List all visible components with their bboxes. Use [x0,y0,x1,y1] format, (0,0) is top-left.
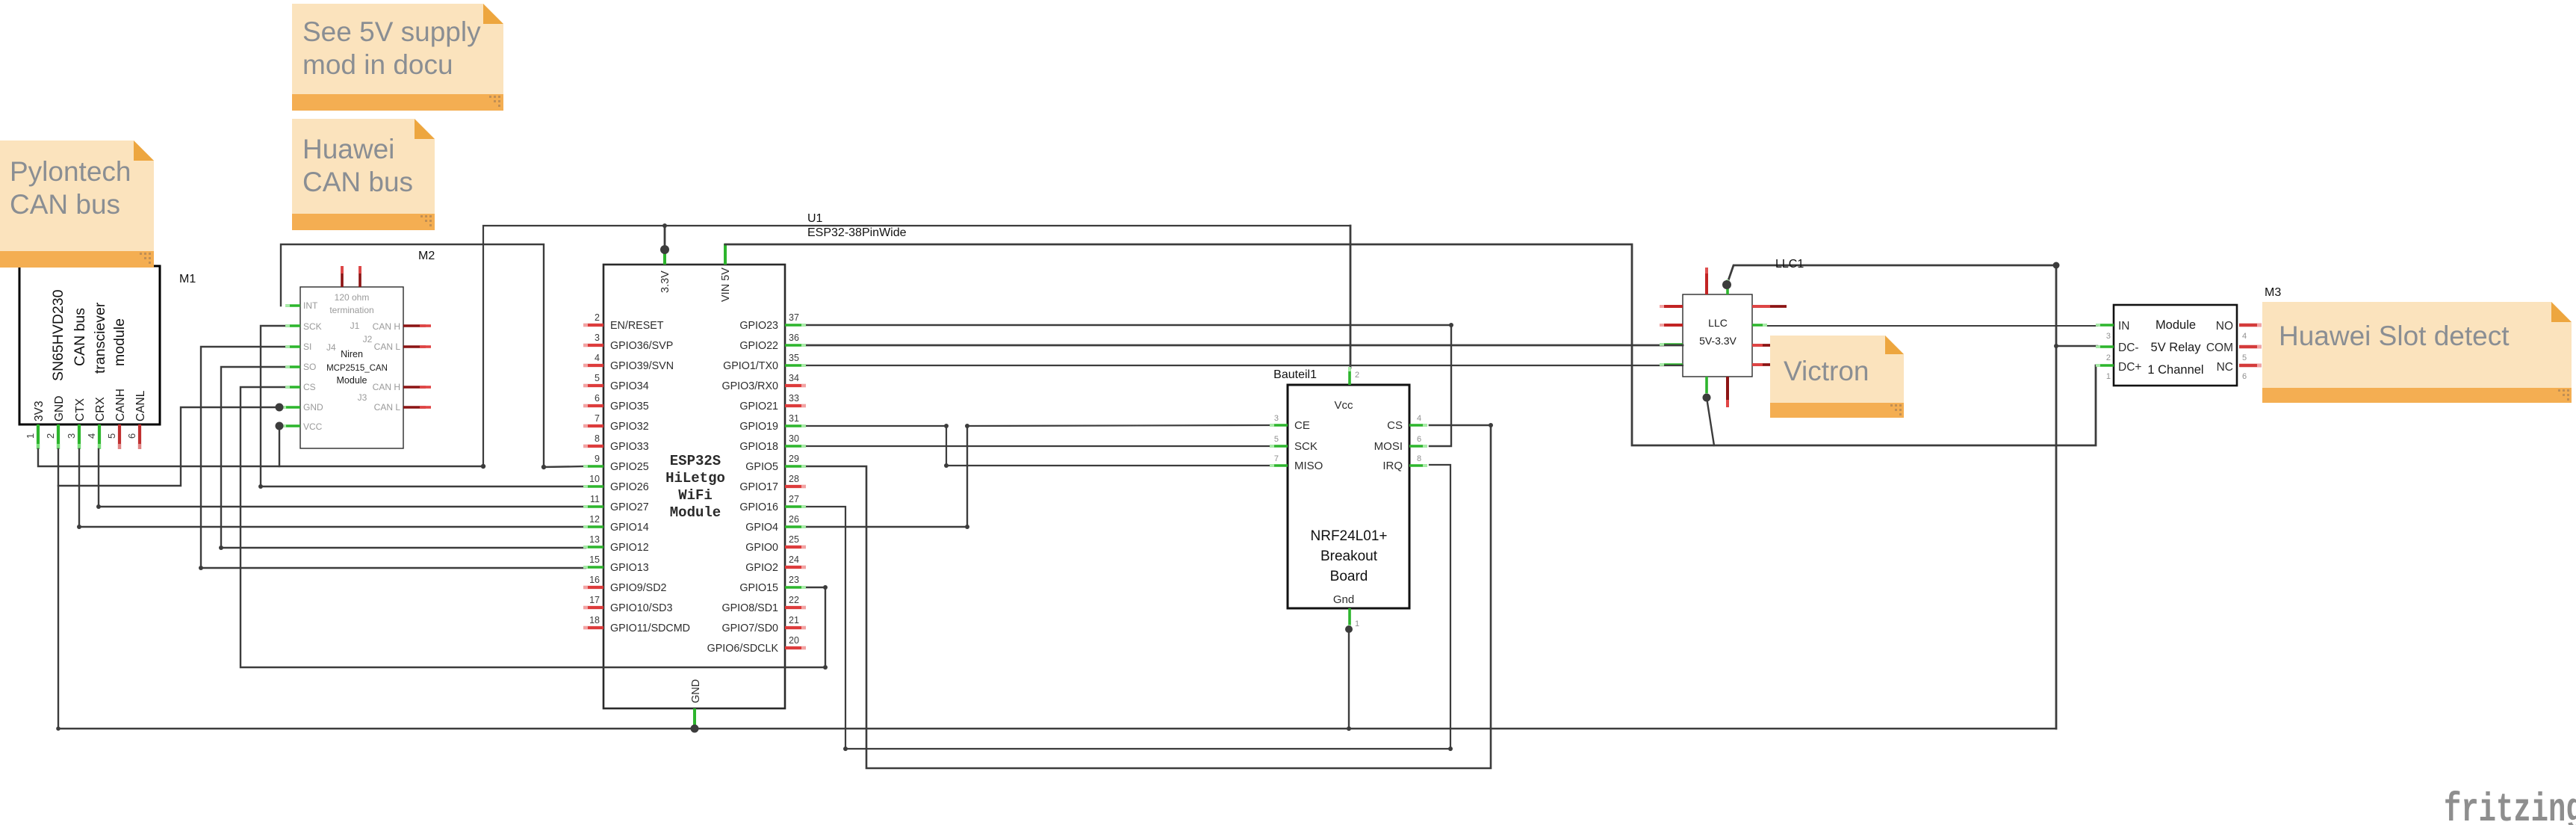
svg-text:1 Channel: 1 Channel [2147,363,2203,377]
svg-text:CANL: CANL [134,390,147,421]
svg-text:CAN L: CAN L [374,342,401,352]
svg-text:4: 4 [1417,414,1421,423]
svg-text:Breakout: Breakout [1320,549,1378,564]
svg-text:1: 1 [1355,619,1359,628]
svg-text:GPIO19: GPIO19 [739,421,778,433]
svg-text:11: 11 [590,494,600,504]
svg-text:28: 28 [789,474,799,484]
svg-text:35: 35 [789,353,799,363]
svg-text:GPIO10/SD3: GPIO10/SD3 [610,602,672,614]
svg-text:VIN 5V: VIN 5V [720,268,732,302]
svg-text:CS: CS [303,382,316,392]
svg-text:120 ohm: 120 ohm [335,292,370,303]
svg-text:mod in docu: mod in docu [302,49,453,80]
svg-text:18: 18 [589,615,600,625]
svg-text:DC-: DC- [2118,342,2139,354]
svg-text:COM: COM [2206,342,2233,354]
svg-text:NRF24L01+: NRF24L01+ [1311,528,1388,544]
svg-text:GPIO33: GPIO33 [610,441,649,453]
svg-text:GPIO16: GPIO16 [739,501,778,513]
svg-text:SN65HVD230: SN65HVD230 [50,289,66,381]
svg-text:GPIO15: GPIO15 [739,582,778,594]
svg-text:30: 30 [789,433,799,444]
svg-text:2: 2 [45,433,56,439]
svg-text:GPIO23: GPIO23 [739,320,778,332]
svg-text:M2: M2 [418,250,435,262]
svg-text:J2: J2 [363,334,373,344]
svg-text:MISO: MISO [1294,460,1323,472]
svg-text:LLC1: LLC1 [1775,258,1804,271]
svg-text:13: 13 [589,534,600,545]
svg-text:GPIO18: GPIO18 [739,441,778,453]
svg-text:LLC: LLC [1708,317,1728,329]
svg-text:MCP2515_CAN: MCP2515_CAN [326,364,388,373]
svg-text:3: 3 [66,433,77,439]
svg-text:GPIO8/SD1: GPIO8/SD1 [722,602,779,614]
svg-text:J1: J1 [350,321,360,331]
svg-text:8: 8 [595,433,600,444]
svg-text:GPIO1/TX0: GPIO1/TX0 [723,360,778,372]
svg-text:J3: J3 [358,392,367,403]
svg-text:GPIO7/SD0: GPIO7/SD0 [722,622,779,634]
svg-text:CTX: CTX [74,398,87,421]
svg-text:10: 10 [589,474,600,484]
svg-text:8: 8 [1417,454,1421,463]
svg-text:WiFi: WiFi [678,487,713,504]
svg-text:IRQ: IRQ [1382,460,1403,472]
svg-text:5: 5 [106,433,117,439]
svg-text:Module: Module [670,504,721,521]
svg-text:CAN H: CAN H [373,321,400,332]
svg-text:15: 15 [589,554,600,565]
svg-text:3: 3 [595,333,600,343]
svg-text:M3: M3 [2265,286,2281,299]
svg-text:See 5V supply: See 5V supply [302,16,481,47]
svg-text:CS: CS [1387,419,1403,432]
svg-text:17: 17 [589,595,600,605]
svg-text:20: 20 [789,635,799,646]
svg-text:5: 5 [2242,353,2247,362]
svg-text:INT: INT [303,300,318,311]
svg-text:27: 27 [789,494,799,504]
svg-text:CAN bus: CAN bus [10,189,120,220]
svg-text:transciever: transciever [92,302,108,374]
svg-text:22: 22 [789,595,799,605]
svg-text:9: 9 [595,454,600,464]
svg-text:SI: SI [303,342,311,352]
svg-text:GPIO9/SD2: GPIO9/SD2 [610,582,667,594]
svg-text:GPIO3/RX0: GPIO3/RX0 [722,380,779,392]
svg-text:GPIO14: GPIO14 [610,522,649,534]
svg-text:GND: GND [690,679,702,703]
svg-text:GPIO5: GPIO5 [745,461,778,473]
svg-text:4: 4 [595,353,600,363]
svg-text:GPIO25: GPIO25 [610,461,649,473]
svg-text:CAN bus: CAN bus [302,167,413,197]
svg-text:CAN bus: CAN bus [72,308,88,366]
svg-text:34: 34 [789,373,799,383]
svg-text:37: 37 [789,312,799,323]
svg-text:3: 3 [1274,414,1279,423]
svg-text:GPIO12: GPIO12 [610,542,649,554]
svg-text:1: 1 [25,433,36,439]
svg-text:fritzing: fritzing [2444,788,2576,825]
svg-text:IN: IN [2118,320,2130,333]
svg-text:Niren: Niren [341,349,363,359]
svg-text:5: 5 [1274,435,1279,444]
svg-text:6: 6 [1417,435,1421,444]
svg-text:GPIO6/SDCLK: GPIO6/SDCLK [707,643,779,655]
svg-text:GPIO27: GPIO27 [610,501,649,513]
svg-text:M1: M1 [179,273,196,285]
svg-text:5: 5 [595,373,600,383]
svg-text:29: 29 [789,454,799,464]
svg-text:EN/RESET: EN/RESET [610,320,664,332]
svg-text:MOSI: MOSI [1374,440,1403,453]
svg-text:1: 1 [2106,372,2111,381]
svg-text:DC+: DC+ [2118,361,2141,374]
svg-text:2: 2 [1355,371,1359,380]
svg-text:NO: NO [2216,320,2233,333]
svg-text:25: 25 [789,534,799,545]
svg-text:4: 4 [2242,332,2247,341]
svg-text:GPIO2: GPIO2 [745,562,778,574]
svg-text:3.3V: 3.3V [659,271,671,293]
svg-text:GPIO35: GPIO35 [610,401,649,412]
svg-text:U1: U1 [807,212,823,225]
svg-text:HiLetgo: HiLetgo [665,470,725,486]
svg-text:SCK: SCK [1294,440,1318,453]
svg-text:GPIO21: GPIO21 [739,401,778,412]
svg-text:23: 23 [789,575,799,585]
svg-text:CAN H: CAN H [373,382,400,392]
svg-text:GPIO22: GPIO22 [739,340,778,352]
svg-text:2: 2 [2106,353,2111,362]
svg-text:6: 6 [2242,372,2247,381]
svg-text:Module: Module [337,375,367,386]
svg-text:7: 7 [595,413,600,424]
svg-text:ESP32S: ESP32S [670,453,721,469]
svg-text:4: 4 [86,433,97,439]
svg-text:CAN L: CAN L [374,402,401,412]
svg-text:termination: termination [329,305,373,315]
svg-text:CE: CE [1294,419,1310,432]
svg-text:GND: GND [53,396,66,421]
svg-text:16: 16 [589,575,600,585]
svg-text:24: 24 [789,554,799,565]
svg-text:SCK: SCK [303,321,322,332]
svg-text:21: 21 [789,615,799,625]
svg-text:2: 2 [595,312,600,323]
svg-text:Board: Board [1330,569,1368,584]
svg-text:6: 6 [126,433,137,439]
svg-text:GPIO26: GPIO26 [610,481,649,493]
svg-text:Vcc: Vcc [1334,399,1353,412]
svg-text:GPIO34: GPIO34 [610,380,649,392]
svg-text:5V-3.3V: 5V-3.3V [1699,335,1737,347]
svg-text:VCC: VCC [303,421,323,432]
svg-text:3: 3 [2106,332,2111,341]
svg-text:GPIO39/SVN: GPIO39/SVN [610,360,674,372]
svg-text:GPIO36/SVP: GPIO36/SVP [610,340,673,352]
svg-text:module: module [111,318,128,366]
svg-text:12: 12 [589,514,600,525]
svg-text:CANH: CANH [114,389,127,421]
svg-text:26: 26 [789,514,799,525]
svg-text:Gnd: Gnd [1333,593,1354,606]
svg-text:CRX: CRX [94,397,107,421]
svg-text:Huawei: Huawei [302,134,394,164]
svg-text:Victron: Victron [1784,356,1869,386]
svg-text:7: 7 [1274,454,1279,463]
svg-text:Huawei Slot detect: Huawei Slot detect [2279,321,2510,351]
svg-text:36: 36 [789,333,799,343]
svg-text:GPIO4: GPIO4 [745,522,778,534]
svg-text:33: 33 [789,393,799,404]
svg-text:Bauteil1: Bauteil1 [1273,368,1317,381]
svg-text:GPIO32: GPIO32 [610,421,649,433]
svg-text:31: 31 [789,413,799,424]
svg-text:J4: J4 [326,342,336,353]
svg-text:6: 6 [595,393,600,404]
svg-text:Pylontech: Pylontech [10,156,131,187]
svg-text:GPIO11/SDCMD: GPIO11/SDCMD [610,622,690,634]
svg-text:ESP32-38PinWide: ESP32-38PinWide [807,226,907,239]
svg-text:5V Relay: 5V Relay [2151,341,2202,354]
svg-text:3V3: 3V3 [33,401,46,421]
svg-text:GPIO17: GPIO17 [739,481,778,493]
svg-text:NC: NC [2217,361,2233,374]
svg-text:Module: Module [2156,318,2196,332]
svg-text:GPIO13: GPIO13 [610,562,649,574]
svg-text:SO: SO [303,362,316,372]
svg-text:GND: GND [303,402,323,412]
svg-text:GPIO0: GPIO0 [745,542,778,554]
